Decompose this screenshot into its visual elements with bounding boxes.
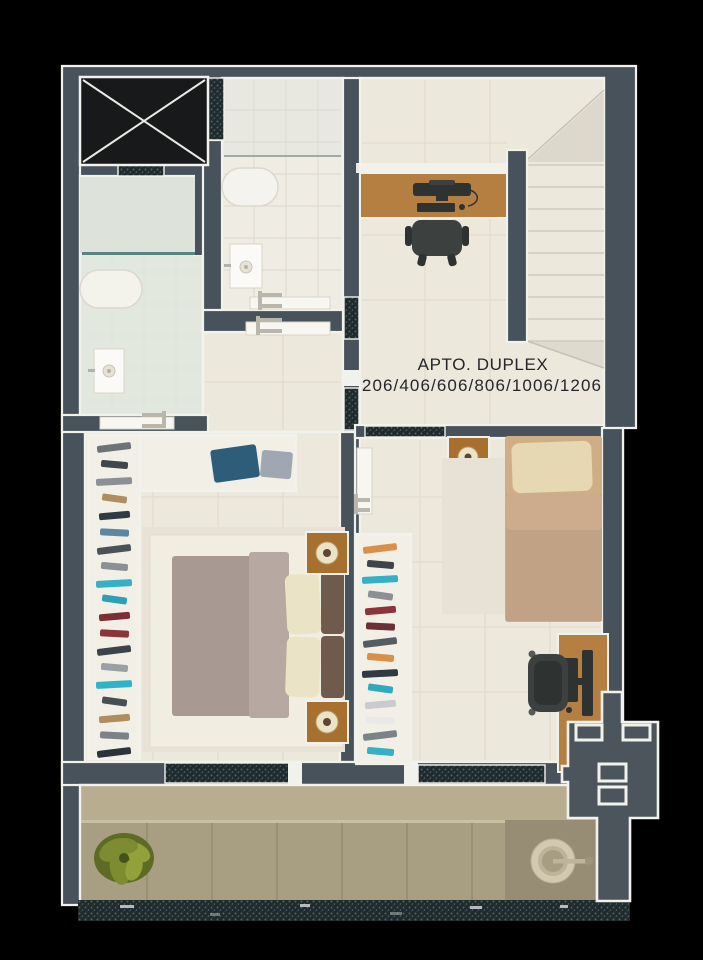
folded-clothes (210, 444, 260, 483)
monitor-icon (582, 650, 593, 716)
column (344, 297, 359, 339)
nightstand-top (306, 532, 348, 574)
balcony (80, 785, 620, 902)
pillow (511, 441, 593, 494)
second-wardrobe (356, 534, 411, 764)
door-opening (288, 763, 302, 784)
faucet-icon (224, 264, 231, 267)
toilet-icon (222, 168, 278, 206)
office-landing-divider (356, 163, 508, 173)
mouse-icon (459, 204, 465, 210)
faucet-icon (553, 859, 589, 864)
rug (442, 458, 508, 614)
single-bed (442, 436, 602, 622)
pavement-strip (78, 900, 630, 921)
door-opening (342, 370, 361, 386)
floor-plan: APTO. DUPLEX 206/406/606/806/1006/1206 (0, 0, 703, 960)
desk-chair-icon (528, 651, 568, 716)
column (365, 426, 445, 437)
faucet-icon (88, 369, 95, 372)
shower-box (80, 176, 195, 253)
pillow (321, 636, 344, 698)
corridor (203, 332, 343, 432)
door-opening (404, 763, 418, 784)
keyboard-icon (417, 203, 455, 212)
glass-partition (82, 252, 195, 255)
planter-strip (418, 765, 545, 783)
pillow (284, 573, 321, 635)
apartment-title: APTO. DUPLEX (418, 355, 549, 374)
pillow (285, 636, 321, 697)
apartment-units: 206/406/606/806/1006/1206 (362, 376, 602, 395)
nightstand-bottom (306, 701, 348, 743)
stair-wall (507, 150, 527, 342)
office-desk (360, 173, 507, 218)
pillow (321, 572, 344, 634)
second-bedroom-door (354, 448, 372, 514)
bathtub-icon (80, 270, 142, 308)
elevator-shaft (80, 77, 208, 165)
planter-strip (165, 763, 290, 783)
column (344, 388, 359, 430)
folded-clothes (260, 450, 293, 480)
mouse-icon (566, 707, 572, 713)
floor-plan-render: APTO. DUPLEX 206/406/606/806/1006/1206 (0, 0, 703, 960)
